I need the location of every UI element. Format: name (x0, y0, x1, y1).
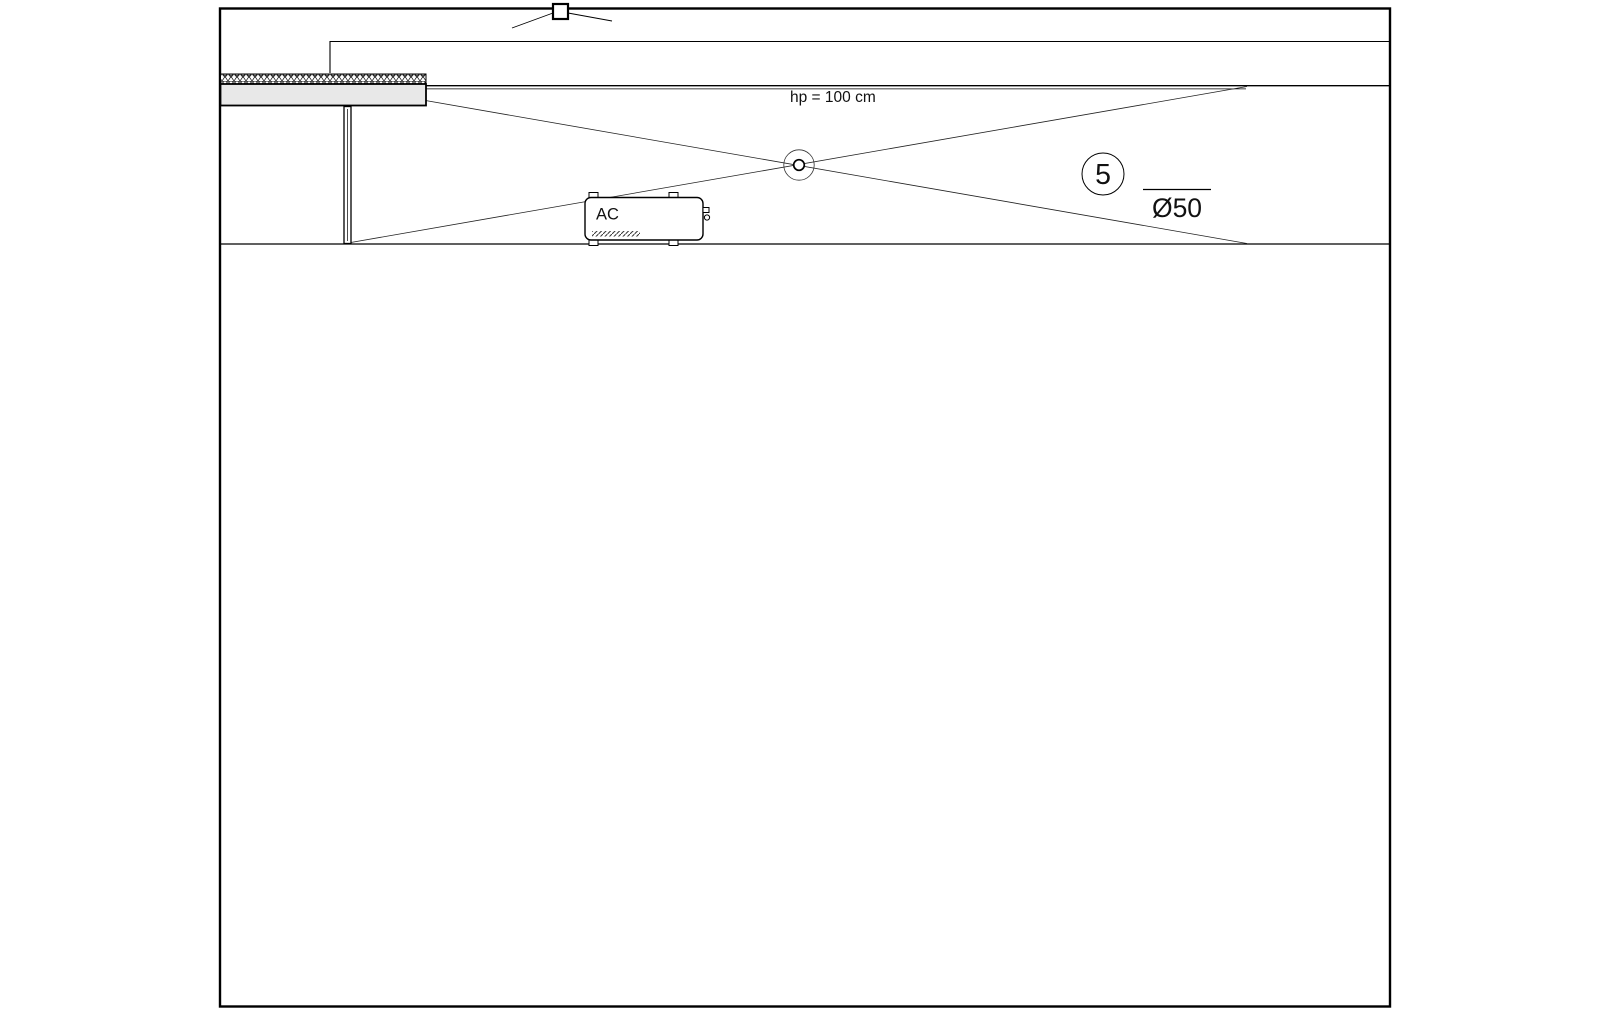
svg-text:5: 5 (1095, 159, 1111, 191)
svg-text:hp = 100 cm: hp = 100 cm (790, 89, 876, 106)
svg-text:Ø50: Ø50 (1152, 193, 1202, 223)
svg-text:AC: AC (596, 206, 619, 224)
